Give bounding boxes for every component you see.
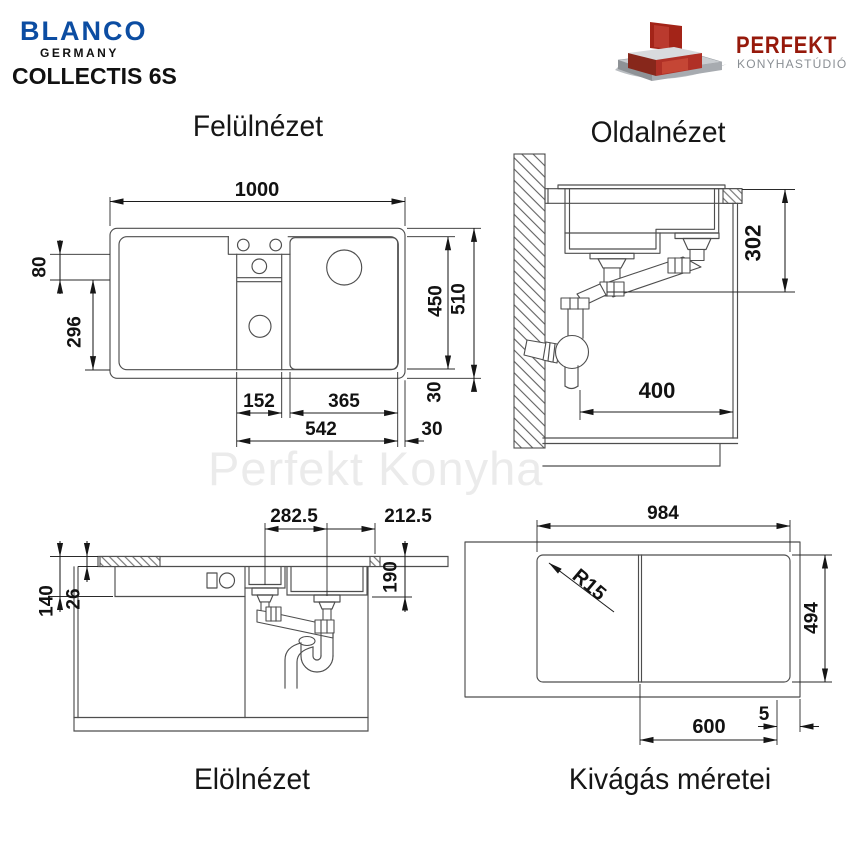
spec-sheet: Perfekt Konyha BLANCO GERMANY COLLECTIS … xyxy=(0,0,850,850)
dim-apron-height: 140 xyxy=(37,585,58,617)
dim-ledge: 80 xyxy=(30,256,51,277)
top-view-geometry xyxy=(110,228,405,378)
siphon-trap xyxy=(556,336,589,369)
counter-section xyxy=(723,189,742,204)
dim-drain-height: 302 xyxy=(741,225,766,262)
middle-bowl-drain xyxy=(249,315,271,337)
side-view-dimensions: 302 400 xyxy=(580,190,795,421)
dim-corner-radius: R15 xyxy=(568,565,610,605)
dim-cutout-height: 494 xyxy=(802,602,823,634)
bin-control xyxy=(207,573,217,588)
kitchen-counter-icon xyxy=(610,16,732,94)
dim-middle-bowl: 152 xyxy=(243,391,275,412)
dim-cabinet-width: 600 xyxy=(692,716,725,738)
counter-section-left xyxy=(100,557,160,567)
siphon-trap-front xyxy=(299,637,315,646)
model-name: COLLECTIS 6S xyxy=(12,65,177,88)
dim-rim-vertical: 30 xyxy=(425,381,446,402)
wall-section xyxy=(514,154,545,448)
title-front-view: Elölnézet xyxy=(111,765,393,795)
dim-overall-width: 1000 xyxy=(235,179,280,201)
title-cutout-view: Kivágás méretei xyxy=(529,765,811,795)
dealer-name: PERFEKT xyxy=(736,34,837,58)
dealer-tagline: KONYHASTÚDIÓ xyxy=(737,58,847,70)
dim-overall-depth: 510 xyxy=(449,283,470,315)
dim-drain-spacing: 282.5 xyxy=(270,506,318,527)
dealer-logo: PERFEKT KONYHASTÚDIÓ xyxy=(610,12,845,97)
bin-knob xyxy=(220,573,235,588)
middle-bowl-upper-drain xyxy=(252,259,267,274)
dim-drainboard: 296 xyxy=(65,316,86,348)
brand-name: BLANCO xyxy=(20,18,177,45)
dim-inner-depth: 450 xyxy=(426,285,447,317)
title-side-view: Oldalnézet xyxy=(517,118,799,148)
top-view-dimensions: 1000 80 296 450 510 30 152 365 542 30 xyxy=(30,179,482,447)
tap-hole-left xyxy=(238,239,250,251)
brand-logo: BLANCO GERMANY COLLECTIS 6S xyxy=(20,18,177,88)
dim-edge-gap: 5 xyxy=(759,704,770,725)
tap-hole-right xyxy=(270,239,282,251)
dim-bowl-span: 542 xyxy=(305,419,337,440)
counter-section-right xyxy=(370,557,380,567)
cutout-view-geometry xyxy=(465,542,800,697)
dim-rim-height: 26 xyxy=(64,588,85,609)
dim-bowl-depth: 190 xyxy=(381,561,402,593)
dim-rim-horizontal: 30 xyxy=(421,419,442,440)
brand-country: GERMANY xyxy=(40,47,177,59)
main-bowl-drain xyxy=(327,250,362,285)
cutout-view-dimensions: 984 494 R15 600 5 xyxy=(537,503,832,745)
dim-clearance: 400 xyxy=(639,378,676,403)
side-view-geometry xyxy=(514,154,742,466)
dim-drain-to-edge: 212.5 xyxy=(384,506,432,527)
dim-cutout-width: 984 xyxy=(647,503,679,524)
title-top-view: Felülnézet xyxy=(117,112,399,142)
dim-main-bowl: 365 xyxy=(328,391,360,412)
